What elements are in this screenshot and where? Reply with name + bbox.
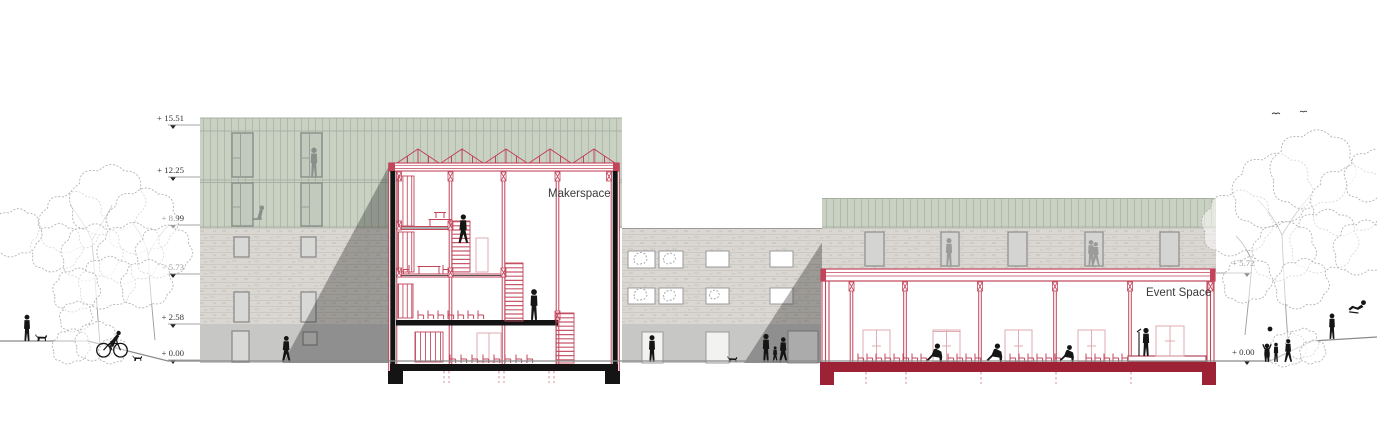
- level-triangle-icon: [170, 324, 176, 328]
- tree-sketch-right: [1202, 130, 1377, 367]
- floor-slab: [390, 364, 618, 371]
- level-label: + 15.51: [157, 113, 184, 123]
- foundation-pier: [820, 372, 834, 385]
- door: [232, 331, 249, 362]
- brace-marker-icon: [903, 282, 908, 291]
- bird-icon: [1272, 113, 1280, 114]
- level-label: + 0.00: [161, 348, 184, 358]
- event-space-section: Event Space: [820, 269, 1216, 385]
- section-elevation-drawing: + 15.51 + 12.25 + 8.99 + 5.73 + 2.58 + 0…: [0, 0, 1377, 428]
- brace-marker-icon: [1128, 282, 1133, 291]
- level-label: + 12.25: [157, 165, 185, 175]
- bird-icon: [1300, 111, 1307, 112]
- level-marker: + 0.00: [1216, 347, 1255, 365]
- person-silhouette: [24, 315, 30, 341]
- foundation-pier: [1202, 372, 1216, 385]
- mid-floor-slab: [396, 320, 558, 326]
- dog-silhouette: [133, 356, 143, 361]
- ball: [1268, 327, 1273, 332]
- foundation-pier: [388, 371, 403, 384]
- level-marker: + 12.25: [157, 165, 200, 181]
- makerspace-section: Makerspace: [388, 149, 620, 384]
- floor-slab: [820, 362, 1216, 372]
- level-triangle-icon: [170, 177, 176, 181]
- pile-dashed-lines: [444, 371, 554, 383]
- level-label: + 0.00: [1232, 347, 1255, 357]
- room-label: Event Space: [1146, 287, 1211, 299]
- green-cladding-parapet: [822, 198, 1216, 228]
- roof-beam: [821, 269, 1215, 281]
- brace-marker-icon: [1053, 282, 1058, 291]
- pile-dashed-lines: [866, 372, 1131, 384]
- level-triangle-icon: [170, 274, 176, 278]
- foundation-pier: [605, 371, 620, 384]
- brace-marker-icon: [849, 282, 854, 291]
- brace-marker-icon: [978, 282, 983, 291]
- architectural-section-elevation: + 15.51 + 12.25 + 8.99 + 5.73 + 2.58 + 0…: [0, 0, 1377, 428]
- level-label: + 2.58: [161, 312, 184, 322]
- middle-building: [622, 228, 830, 363]
- right-building: [822, 198, 1216, 272]
- level-marker: + 2.58: [161, 312, 200, 328]
- dog-silhouette: [36, 335, 48, 341]
- level-triangle-icon: [170, 125, 176, 129]
- level-marker: + 15.51: [157, 113, 200, 129]
- skater-silhouette: [1349, 300, 1366, 313]
- roof-beam: [389, 163, 619, 171]
- person-silhouette: [1329, 314, 1335, 339]
- room-label: Makerspace: [548, 188, 611, 200]
